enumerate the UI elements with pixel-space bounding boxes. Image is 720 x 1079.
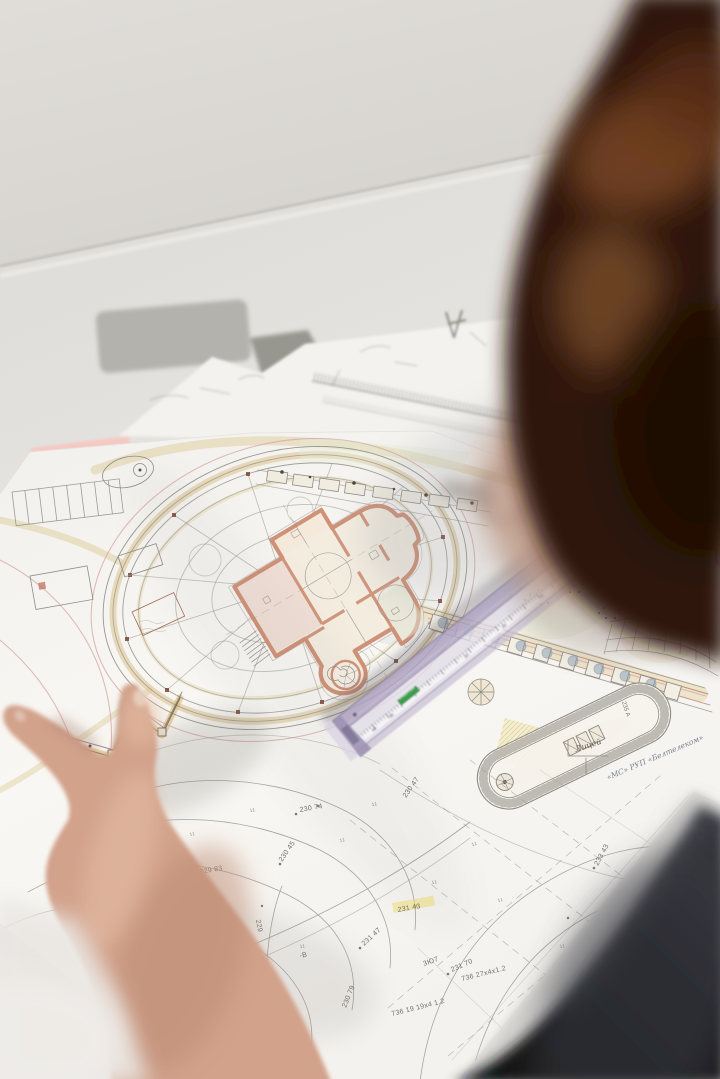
svg-text:11: 11 xyxy=(249,807,255,813)
photo-canvas: 11 11 11 11 11 11 11 11 11 11 11 11 11 2… xyxy=(0,0,720,1079)
photo-scene: 11 11 11 11 11 11 11 11 11 11 11 11 11 2… xyxy=(0,0,720,1079)
svg-text:11: 11 xyxy=(559,943,565,949)
pinwheel-tree xyxy=(468,679,494,705)
